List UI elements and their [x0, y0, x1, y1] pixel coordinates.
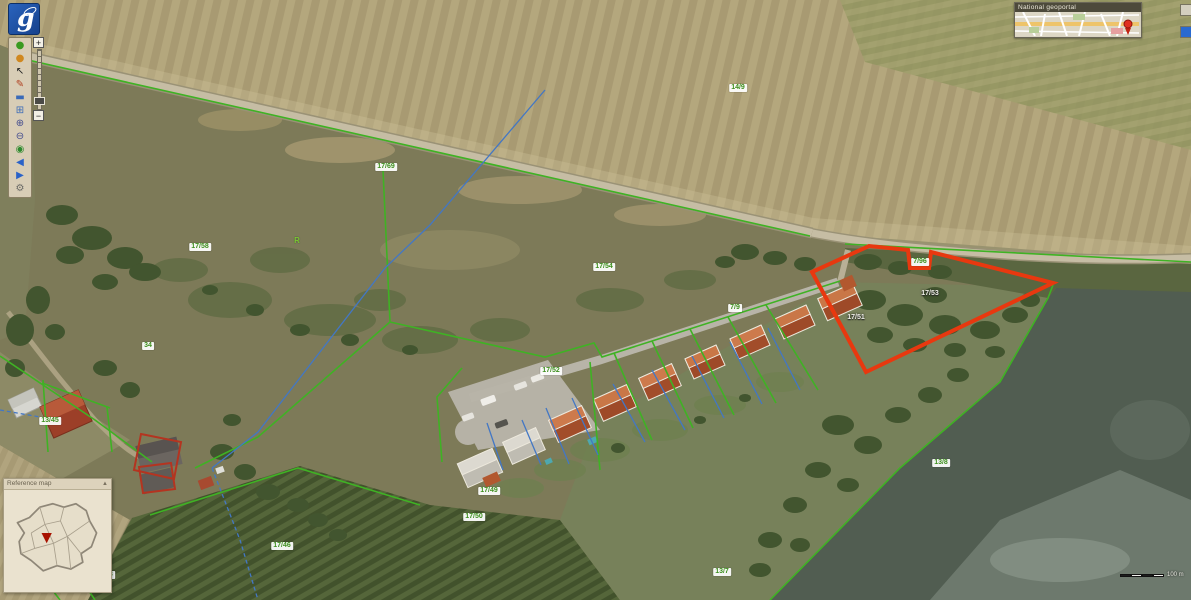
- zoom-slider-handle[interactable]: [34, 97, 45, 105]
- scale-label: 100 m: [1167, 572, 1184, 578]
- aerial-imagery[interactable]: [0, 0, 1191, 600]
- overview-title: Reference map: [7, 479, 51, 489]
- poland-overview-map[interactable]: [14, 495, 100, 583]
- forward-icon[interactable]: ▶: [11, 170, 29, 182]
- reference-map-panel[interactable]: Reference map ▲: [3, 478, 112, 593]
- zoom-out-icon[interactable]: ⊖: [11, 131, 29, 143]
- geoportal-logo[interactable]: g: [8, 3, 40, 35]
- settings-icon[interactable]: ⚙: [11, 183, 29, 195]
- minimap-title: National geoportal: [1015, 3, 1141, 12]
- collapse-minimap-button[interactable]: [1180, 4, 1191, 16]
- zoom-slider: + −: [33, 37, 45, 121]
- minimap-streets: [1015, 12, 1139, 36]
- overview-icon[interactable]: ●: [11, 40, 29, 52]
- national-geoportal-minimap[interactable]: National geoportal: [1014, 2, 1142, 38]
- select-icon[interactable]: ↖: [11, 66, 29, 78]
- draw-measure-icon[interactable]: ✎: [11, 79, 29, 91]
- back-icon[interactable]: ◀: [11, 157, 29, 169]
- map-toolbar: ●●↖✎▬⊞⊕⊖◉◀▶⚙: [8, 37, 32, 198]
- info-icon[interactable]: ●: [11, 53, 29, 65]
- full-extent-icon[interactable]: ◉: [11, 144, 29, 156]
- zoom-window-icon[interactable]: ⊞: [11, 105, 29, 117]
- scale-bar: 100 m: [1120, 572, 1184, 578]
- zoom-in-icon[interactable]: ⊕: [11, 118, 29, 130]
- zoom-plus-button[interactable]: +: [33, 37, 44, 48]
- map-viewport[interactable]: 14/917/6917/5817/54R3417/5213/457/97/961…: [0, 0, 1191, 600]
- ruler-icon[interactable]: ▬: [11, 92, 29, 104]
- locate-button[interactable]: [1180, 26, 1191, 38]
- collapse-overview-icon[interactable]: ▲: [102, 479, 108, 489]
- zoom-minus-button[interactable]: −: [33, 110, 44, 121]
